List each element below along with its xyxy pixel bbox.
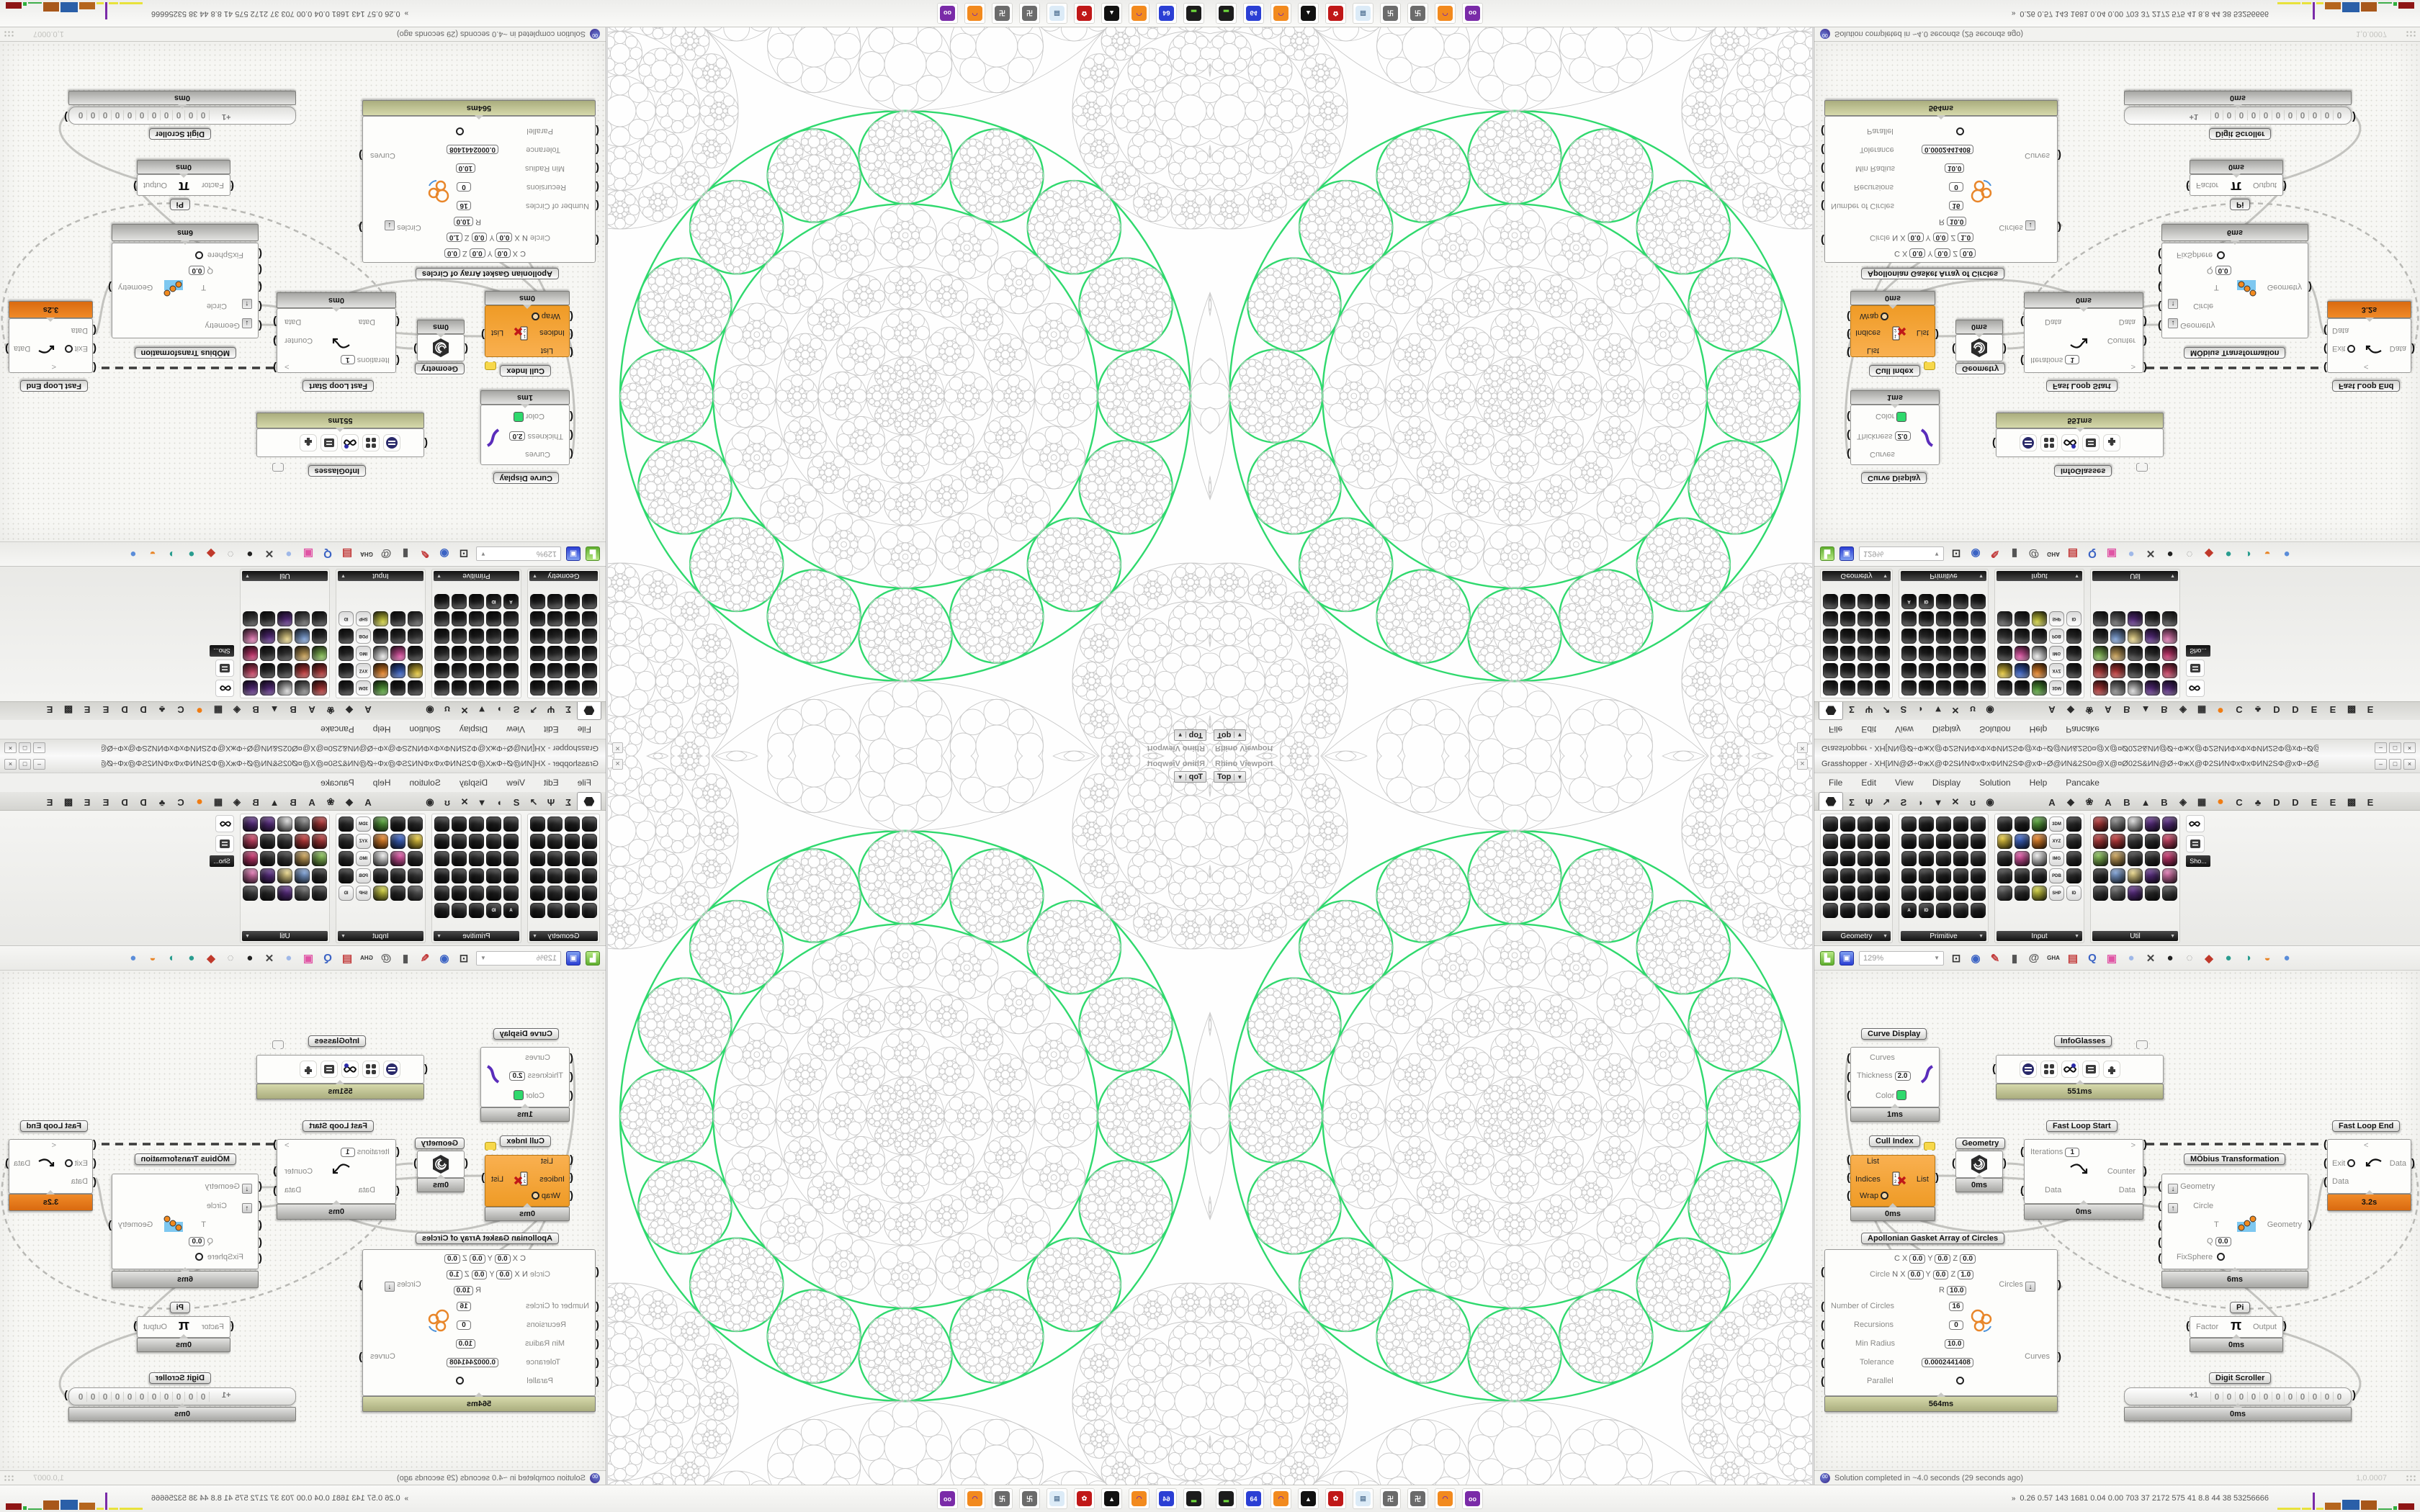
floppy64-icon[interactable]: 64 (1156, 1488, 1177, 1509)
component-icon[interactable] (452, 611, 467, 626)
component-icon[interactable] (2145, 851, 2160, 866)
digit-cell[interactable]: 0 (2321, 1392, 2333, 1402)
component-icon[interactable] (373, 816, 388, 832)
component-icon[interactable] (530, 611, 545, 626)
node-label-mobius[interactable]: MÖbius Transformation (2184, 1153, 2285, 1165)
component-icon[interactable] (582, 851, 597, 866)
tab-plugin-10[interactable]: C (2231, 702, 2248, 718)
tab-icon-7[interactable]: ʊ (1964, 702, 1981, 718)
tab-plugin-5[interactable]: ▲ (2137, 794, 2154, 810)
sphere-half-icon[interactable]: ◑ (2241, 951, 2255, 966)
component-icon[interactable] (486, 680, 501, 696)
flatten-icon[interactable]: ↓ (242, 1184, 252, 1194)
component-icon[interactable] (1840, 680, 1855, 696)
component-icon[interactable] (2032, 834, 2047, 849)
node-label-cull-index[interactable]: Cull Index (1869, 1135, 1920, 1147)
notepad-icon[interactable]: ▤ (1353, 3, 1373, 24)
component-icon[interactable] (434, 646, 449, 661)
component-icon[interactable] (1953, 629, 1968, 644)
tab-icon-8[interactable]: ◉ (421, 702, 439, 718)
component-icon[interactable]: PDB (2049, 868, 2064, 883)
component-icon[interactable] (312, 868, 327, 883)
digit-cell[interactable]: 0 (87, 1392, 99, 1402)
component-icon[interactable] (295, 629, 310, 644)
component-icon[interactable]: XYZ (356, 834, 371, 849)
floppy64-icon[interactable]: 64 (1243, 3, 1264, 24)
component-icon[interactable] (1875, 886, 1890, 901)
component-icon[interactable] (2015, 611, 2030, 626)
tab-plugin-17[interactable]: E (2362, 702, 2379, 718)
component-icon[interactable] (2162, 629, 2177, 644)
group-label[interactable]: Util▼ (2092, 931, 2178, 941)
component-icon[interactable]: XYZ (2049, 834, 2064, 849)
tab-icon-1[interactable]: Ψ (1860, 794, 1878, 810)
component-icon[interactable] (1919, 834, 1934, 849)
balloon-icon[interactable]: ● (2124, 951, 2138, 966)
component-icon[interactable] (1875, 816, 1890, 832)
component-icon[interactable] (2032, 868, 2047, 883)
component-icon[interactable]: A (1901, 594, 1917, 609)
digit-cell[interactable]: 0 (173, 110, 185, 120)
grasshopper-titlebar[interactable]: Grasshopper - XH[ИN@Ø÷ΦжX@Φ2SИNΦxΦxΦИN2S… (0, 756, 606, 773)
node-label-fast-loop-end[interactable]: Fast Loop End (20, 380, 88, 392)
component-icon[interactable] (1953, 851, 1968, 866)
component-icon[interactable] (1840, 611, 1855, 626)
resize-grip[interactable] (2406, 1475, 2416, 1482)
component-icon[interactable]: ID (339, 886, 354, 901)
component-icon[interactable] (2015, 663, 2030, 678)
digit-cell[interactable]: 0 (112, 1392, 124, 1402)
component-icon[interactable] (2128, 680, 2143, 696)
component-icon[interactable] (2015, 646, 2030, 661)
rhino-viewport[interactable]: Rhino Viewport Top▼ × (1210, 27, 1813, 756)
firefox-icon[interactable]: ◠ (964, 3, 985, 24)
component-icon[interactable] (1857, 629, 1873, 644)
component-icon[interactable] (408, 868, 423, 883)
component-icon[interactable] (243, 816, 258, 832)
component-icon[interactable] (452, 851, 467, 866)
node-fast-loop-end[interactable]: ( ( ( ) < Exit Data Data (2327, 318, 2411, 373)
goggles-icon[interactable] (2186, 680, 2205, 697)
tab-icon-3[interactable]: Ƨ (1895, 702, 1912, 718)
component-icon[interactable]: IMG (356, 851, 371, 866)
digit-cell[interactable]: 0 (2333, 1392, 2345, 1402)
gem-icon[interactable]: ◆ (204, 547, 218, 562)
minimize-button[interactable]: – (33, 759, 45, 770)
node-label-pi[interactable]: Pi (170, 199, 190, 210)
component-icon[interactable] (434, 611, 449, 626)
component-icon[interactable] (452, 886, 467, 901)
tab-plugin-15[interactable]: E (2324, 702, 2341, 718)
component-icon[interactable]: IMG (2049, 851, 2064, 866)
node-label-curve-display[interactable]: Curve Display (493, 472, 559, 484)
component-icon[interactable] (2145, 886, 2160, 901)
component-icon[interactable] (434, 816, 449, 832)
tab-plugin-1[interactable]: ◆ (341, 794, 358, 810)
component-icon[interactable] (1840, 594, 1855, 609)
node-label-fast-loop-end[interactable]: Fast Loop End (2332, 380, 2400, 392)
digit-cells[interactable]: 00000000000 (2210, 1390, 2345, 1403)
menu-view[interactable]: View (506, 724, 525, 734)
component-icon[interactable] (503, 646, 519, 661)
node-label-fast-loop-start[interactable]: Fast Loop Start (2046, 380, 2117, 392)
component-icon[interactable] (582, 646, 597, 661)
group-label[interactable]: Util▼ (2092, 571, 2178, 581)
component-icon[interactable] (408, 646, 423, 661)
node-label-digit-scroller[interactable]: Digit Scroller (2209, 1372, 2271, 1384)
goggles-icon[interactable] (215, 815, 234, 832)
component-icon[interactable] (1823, 611, 1838, 626)
component-icon[interactable] (1901, 868, 1917, 883)
eye-icon[interactable]: ◉ (437, 951, 452, 966)
node-cull-index[interactable]: ( ( ( ) List Indices 12 List Wrap (1850, 305, 1935, 357)
component-icon[interactable] (2093, 611, 2108, 626)
component-icon[interactable] (1857, 816, 1873, 832)
maze-icon[interactable]: 卍 (1019, 1488, 1040, 1509)
component-icon[interactable] (1901, 851, 1917, 866)
tab-plugin-16[interactable]: ▩ (2343, 794, 2360, 810)
drive-icon[interactable]: ▂ (1183, 1488, 1204, 1509)
component-icon[interactable]: ID (1919, 903, 1934, 918)
component-icon[interactable] (295, 868, 310, 883)
parallel-toggle[interactable] (456, 127, 464, 135)
component-icon[interactable] (2032, 886, 2047, 901)
gha-icon[interactable]: GHA (359, 547, 374, 562)
component-icon[interactable] (530, 646, 545, 661)
tab-icon-2[interactable]: ↗ (1878, 702, 1895, 718)
tab-plugin-14[interactable]: E (97, 794, 115, 810)
component-icon[interactable] (486, 868, 501, 883)
flatten-icon[interactable]: ↓ (2168, 318, 2178, 328)
owl-icon[interactable]: oo (1462, 3, 1483, 24)
exit-toggle[interactable] (2347, 1159, 2355, 1167)
component-icon[interactable]: PDB (2049, 629, 2064, 644)
save-file-button[interactable]: ▣ (566, 547, 581, 562)
maze-icon[interactable]: 卍 (1407, 3, 1428, 24)
at-icon[interactable]: @ (379, 547, 393, 562)
component-icon[interactable] (1840, 629, 1855, 644)
resize-grip[interactable] (4, 1475, 14, 1482)
component-icon[interactable] (565, 903, 580, 918)
menu-display[interactable]: Display (460, 724, 488, 734)
digit-cell[interactable]: 0 (2259, 1392, 2272, 1402)
component-icon[interactable] (408, 680, 423, 696)
node-label-apollonian[interactable]: Apollonian Gasket Array of Circles (416, 268, 559, 279)
sphere-teal-icon[interactable]: ● (184, 547, 199, 562)
tab-plugin-14[interactable]: E (2305, 702, 2323, 718)
bubble-icon[interactable] (272, 463, 284, 472)
sketch-pen-icon[interactable]: ✎ (1988, 951, 2002, 966)
node-label-cull-index[interactable]: Cull Index (500, 365, 551, 377)
component-icon[interactable] (277, 611, 292, 626)
component-icon[interactable] (260, 834, 275, 849)
gem-icon[interactable]: ◆ (2202, 547, 2216, 562)
owl-icon[interactable]: oo (937, 1488, 958, 1509)
component-icon[interactable] (373, 868, 388, 883)
digit-cell[interactable]: 0 (2235, 110, 2247, 120)
tab-icon-4[interactable]: ◗ (490, 794, 508, 810)
component-icon[interactable] (1857, 868, 1873, 883)
component-icon[interactable] (339, 646, 354, 661)
component-icon[interactable] (1971, 868, 1986, 883)
component-icon[interactable] (2162, 646, 2177, 661)
component-icon[interactable] (2128, 611, 2143, 626)
digit-cell[interactable]: 0 (2321, 110, 2333, 120)
menu-file[interactable]: File (578, 724, 591, 734)
tab-plugin-12[interactable]: D (135, 702, 152, 718)
menu-help[interactable]: Help (373, 724, 391, 734)
save-file-button[interactable]: ▣ (566, 951, 581, 966)
tab-icon-8[interactable]: ◉ (1981, 702, 1999, 718)
component-icon[interactable] (373, 611, 388, 626)
component-icon[interactable] (390, 886, 405, 901)
menu-view[interactable]: View (506, 778, 525, 788)
tab-plugin-10[interactable]: C (2231, 794, 2248, 810)
component-icon[interactable] (452, 834, 467, 849)
component-icon[interactable] (243, 646, 258, 661)
digit-cell[interactable]: 0 (173, 1392, 185, 1402)
component-icon[interactable] (530, 594, 545, 609)
gha-icon[interactable]: GHA (2046, 951, 2061, 966)
component-icon[interactable] (547, 851, 563, 866)
component-icon[interactable] (565, 646, 580, 661)
wrap-toggle[interactable] (1881, 1192, 1888, 1200)
node-label-digit-scroller[interactable]: Digit Scroller (149, 1372, 211, 1384)
component-icon[interactable] (1936, 594, 1951, 609)
tab-params[interactable] (1819, 702, 1843, 720)
component-icon[interactable] (277, 680, 292, 696)
tab-icon-3[interactable]: Ƨ (1895, 794, 1912, 810)
frame-focus-icon[interactable]: ⊡ (1949, 547, 1963, 562)
component-icon[interactable] (339, 663, 354, 678)
tab-plugin-6[interactable]: B (247, 702, 264, 718)
component-icon[interactable] (1823, 663, 1838, 678)
component-icon[interactable] (295, 611, 310, 626)
node-label-cull-index[interactable]: Cull Index (1869, 365, 1920, 377)
tab-icon-0[interactable]: Σ (560, 702, 577, 718)
component-icon[interactable] (1953, 886, 1968, 901)
menu-help[interactable]: Help (2030, 778, 2048, 788)
node-fast-loop-start[interactable]: ( ( ) ) ) Iterations 1 > Counter Data Da… (2024, 1139, 2143, 1204)
cat-icon[interactable]: ▲ (1298, 1488, 1319, 1509)
component-icon[interactable] (2093, 886, 2108, 901)
at-icon[interactable]: @ (379, 951, 393, 966)
component-icon[interactable]: ID (1919, 594, 1934, 609)
component-icon[interactable] (295, 886, 310, 901)
group-label[interactable]: Primitive▼ (1901, 931, 1986, 941)
menu-display[interactable]: Display (1932, 778, 1960, 788)
grasshopper-titlebar[interactable]: Grasshopper - XH[ИN@Ø÷ΦжX@Φ2SИNΦxΦxΦИN2S… (1814, 739, 2420, 756)
component-icon[interactable]: SHP (2049, 886, 2064, 901)
node-mobius[interactable]: ( ( ( ( ( ) ↓ Geometry ↑ Circle T Q 0.0 … (2161, 1174, 2308, 1269)
component-icon[interactable] (243, 851, 258, 866)
component-icon[interactable] (2110, 834, 2125, 849)
tab-plugin-12[interactable]: D (135, 794, 152, 810)
digit-cell[interactable]: 0 (2223, 1392, 2235, 1402)
tab-icon-2[interactable]: ↗ (525, 794, 542, 810)
digit-cell[interactable]: 0 (2296, 1392, 2308, 1402)
component-icon[interactable] (1919, 816, 1934, 832)
component-icon[interactable] (1875, 834, 1890, 849)
component-icon[interactable] (277, 851, 292, 866)
tab-plugin-10[interactable]: C (172, 702, 189, 718)
maze-icon[interactable]: 卍 (992, 1488, 1013, 1509)
digit-cell[interactable]: 0 (2235, 1392, 2247, 1402)
tab-icon-5[interactable]: ▼ (473, 702, 490, 718)
component-icon[interactable] (2145, 611, 2160, 626)
tab-plugin-13[interactable]: D (2287, 702, 2304, 718)
tab-plugin-16[interactable]: ▩ (60, 702, 77, 718)
grasshopper-titlebar[interactable]: Grasshopper - XH[ИN@Ø÷ΦжX@Φ2SИNΦxΦxΦИN2S… (0, 739, 606, 756)
component-icon[interactable] (547, 629, 563, 644)
component-icon[interactable] (1875, 629, 1890, 644)
zoom-level-dropdown[interactable]: 129%▼ (476, 951, 561, 966)
component-icon[interactable]: ID (2066, 886, 2081, 901)
node-digit-scroller[interactable]: ) +1 00000000000 (2124, 107, 2352, 125)
parallel-toggle[interactable] (1956, 1377, 1964, 1385)
component-icon[interactable] (1823, 629, 1838, 644)
component-icon[interactable] (2066, 663, 2081, 678)
tab-plugin-15[interactable]: E (79, 702, 96, 718)
node-mobius[interactable]: ( ( ( ( ( ) ↓ Geometry ↑ Circle T Q 0.0 … (112, 243, 259, 338)
firefox-icon[interactable]: ◠ (964, 1488, 985, 1509)
graft-icon[interactable]: ↑ (242, 1203, 252, 1213)
tab-plugin-7[interactable]: ◈ (228, 794, 246, 810)
component-icon[interactable] (565, 851, 580, 866)
tab-params[interactable] (577, 702, 601, 720)
component-icon[interactable] (503, 834, 519, 849)
component-icon[interactable] (408, 886, 423, 901)
tab-plugin-9[interactable]: ● (2212, 794, 2229, 810)
component-icon[interactable] (2066, 816, 2081, 832)
group-label[interactable]: Input▼ (338, 931, 423, 941)
digit-cell[interactable]: 0 (2223, 110, 2235, 120)
menu-file[interactable]: File (1829, 724, 1842, 734)
component-icon[interactable] (1971, 663, 1986, 678)
tab-plugin-5[interactable]: ▲ (266, 794, 283, 810)
maximize-button[interactable]: □ (2389, 742, 2401, 753)
sphere-black-icon[interactable]: ● (2163, 547, 2177, 562)
component-icon[interactable] (1997, 663, 2012, 678)
component-icon[interactable] (1936, 646, 1951, 661)
component-icon[interactable] (295, 663, 310, 678)
tab-plugin-17[interactable]: E (41, 702, 58, 718)
component-icon[interactable] (1823, 868, 1838, 883)
component-icon[interactable] (2128, 629, 2143, 644)
group-label[interactable]: Geometry▼ (1822, 931, 1891, 941)
component-icon[interactable] (565, 663, 580, 678)
tab-icon-6[interactable]: ✕ (1947, 794, 1964, 810)
component-icon[interactable] (1919, 868, 1934, 883)
tab-icon-6[interactable]: ✕ (456, 794, 473, 810)
component-icon[interactable] (390, 611, 405, 626)
bubble-icon-yellow[interactable] (1924, 361, 1935, 370)
menu-solution[interactable]: Solution (1979, 778, 2010, 788)
component-icon[interactable] (1857, 680, 1873, 696)
component-icon[interactable] (469, 834, 484, 849)
component-icon[interactable] (295, 834, 310, 849)
component-icon[interactable] (2093, 646, 2108, 661)
node-label-mobius[interactable]: MÖbius Transformation (2184, 347, 2285, 359)
digit-cell[interactable]: 0 (2210, 110, 2223, 120)
component-icon[interactable] (277, 834, 292, 849)
menu-help[interactable]: Help (373, 778, 391, 788)
component-icon[interactable] (1936, 611, 1951, 626)
component-icon[interactable] (2162, 851, 2177, 866)
component-icon[interactable] (260, 629, 275, 644)
component-icon[interactable]: XYZ (2049, 663, 2064, 678)
flag-icon[interactable]: ▤ (340, 951, 354, 966)
tab-plugin-4[interactable]: B (2118, 794, 2136, 810)
component-icon[interactable] (503, 663, 519, 678)
maximize-button[interactable]: □ (19, 742, 31, 753)
tab-icon-2[interactable]: ↗ (525, 702, 542, 718)
component-icon[interactable] (469, 646, 484, 661)
component-icon[interactable] (408, 834, 423, 849)
eye-icon[interactable]: ◉ (1968, 547, 1983, 562)
component-icon[interactable] (486, 834, 501, 849)
tab-plugin-4[interactable]: B (284, 794, 302, 810)
tab-plugin-17[interactable]: E (41, 794, 58, 810)
pink-box-icon[interactable]: ▣ (2105, 951, 2119, 966)
component-icon[interactable] (390, 629, 405, 644)
component-icon[interactable] (2093, 851, 2108, 866)
exit-toggle[interactable] (2347, 345, 2355, 353)
node-apollonian[interactable]: ( ( ( ( ( ( ) ) C X 0.0 Y 0.0 Z 0.0 Circ… (1824, 1249, 2058, 1396)
component-icon[interactable] (2093, 680, 2108, 696)
component-icon[interactable] (2066, 680, 2081, 696)
group-label[interactable]: Geometry▼ (529, 931, 598, 941)
component-icon[interactable] (2032, 646, 2047, 661)
component-icon[interactable] (243, 834, 258, 849)
component-icon[interactable] (243, 868, 258, 883)
component-icon[interactable] (2162, 663, 2177, 678)
digit-cell[interactable]: 0 (112, 110, 124, 120)
tab-plugin-2[interactable]: ❀ (322, 702, 339, 718)
digit-cell[interactable]: 0 (185, 1392, 197, 1402)
component-icon[interactable] (1857, 646, 1873, 661)
gh-canvas[interactable]: Curve Display ( ( ( Curves Thickness 2.0… (1814, 971, 2420, 1470)
component-icon[interactable] (260, 663, 275, 678)
component-icon[interactable] (2110, 851, 2125, 866)
component-icon[interactable] (2110, 629, 2125, 644)
component-icon[interactable] (434, 903, 449, 918)
component-icon[interactable] (1875, 851, 1890, 866)
tab-plugin-0[interactable]: A (359, 702, 377, 718)
component-icon[interactable] (2145, 868, 2160, 883)
digit-cell[interactable]: 0 (124, 1392, 136, 1402)
node-label-apollonian[interactable]: Apollonian Gasket Array of Circles (416, 1233, 559, 1244)
eye-icon[interactable]: ◉ (1968, 951, 1983, 966)
component-icon[interactable] (1971, 903, 1986, 918)
tab-icon-5[interactable]: ▼ (1930, 702, 1947, 718)
tab-plugin-10[interactable]: C (172, 794, 189, 810)
component-icon[interactable] (243, 629, 258, 644)
tab-params[interactable] (577, 792, 601, 810)
component-icon[interactable]: PDB (356, 629, 371, 644)
component-icon[interactable] (2128, 834, 2143, 849)
digit-cell[interactable]: 0 (136, 110, 148, 120)
resize-grip[interactable] (2406, 30, 2416, 37)
component-icon[interactable] (452, 646, 467, 661)
node-curve-display[interactable]: ( ( ( Curves Thickness 2.0 Color (1850, 1047, 1940, 1107)
component-icon[interactable] (434, 886, 449, 901)
maze-icon[interactable]: 卍 (1380, 1488, 1401, 1509)
component-icon[interactable] (565, 611, 580, 626)
sphere-blue-icon[interactable]: ● (2280, 951, 2294, 966)
component-icon[interactable] (1823, 816, 1838, 832)
tab-plugin-11[interactable]: ♣ (2249, 702, 2267, 718)
